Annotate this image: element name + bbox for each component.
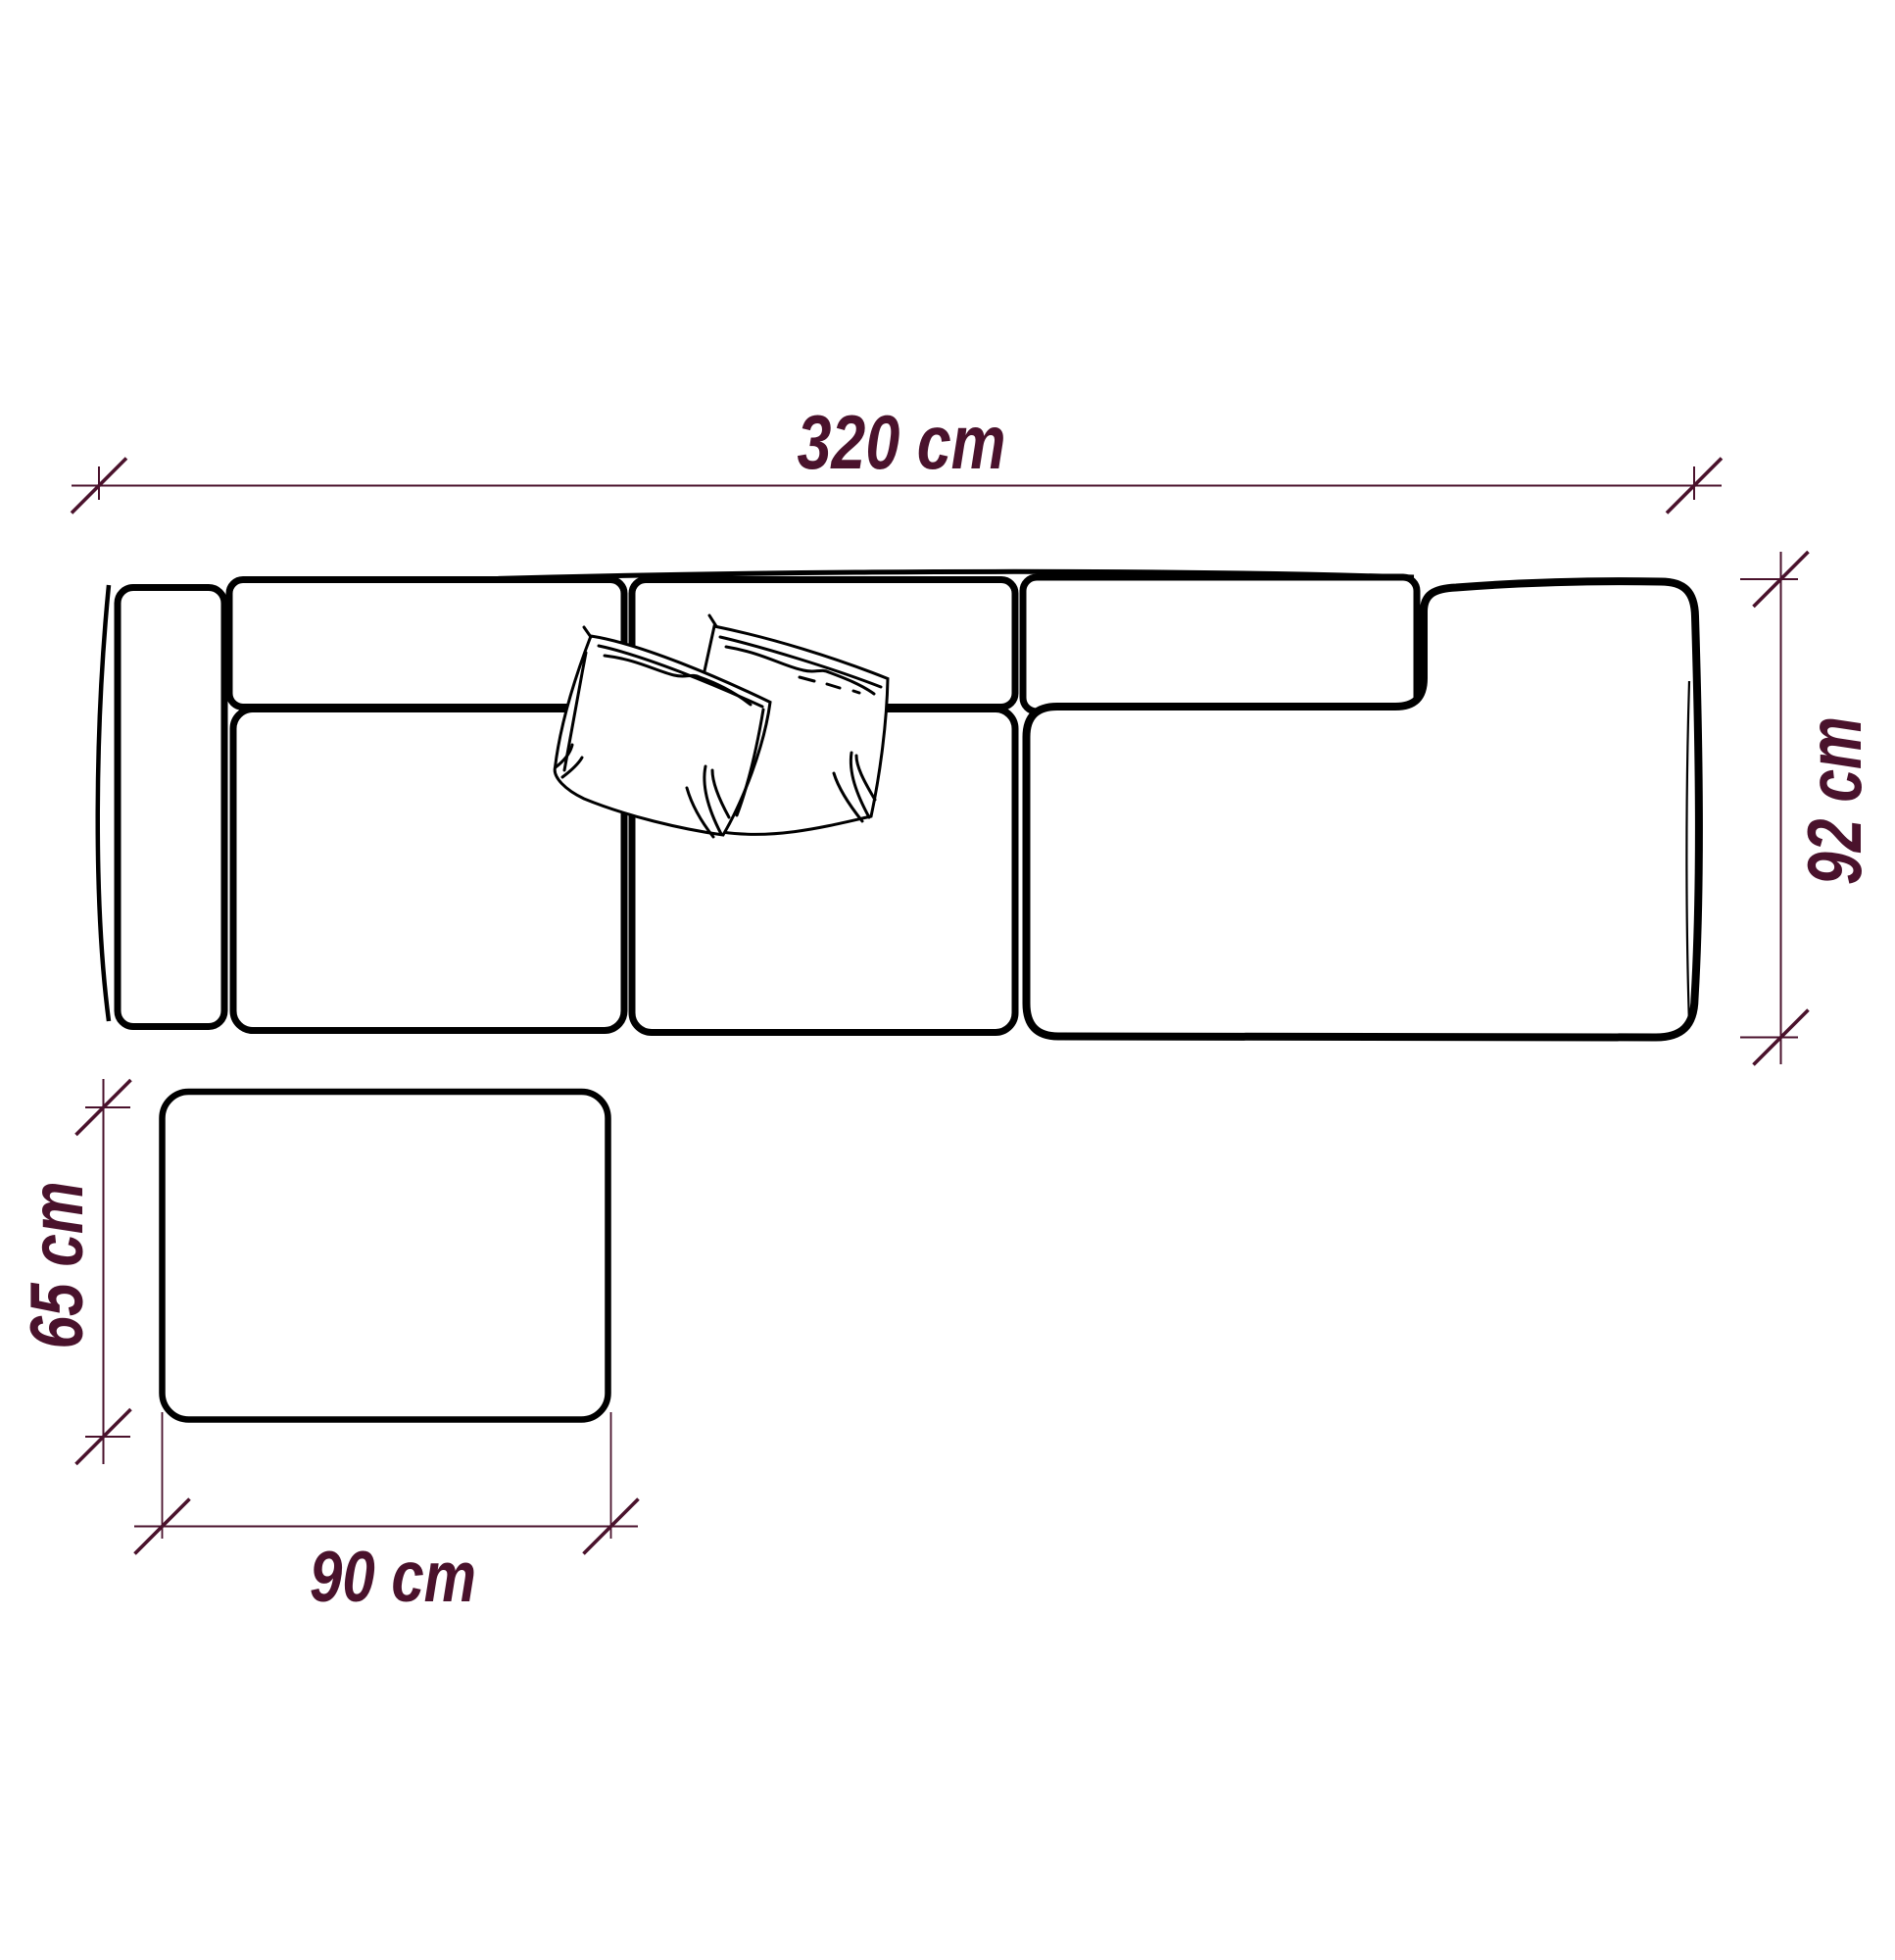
svg-text:65 cm: 65 cm — [16, 1182, 99, 1349]
svg-text:90 cm: 90 cm — [310, 1538, 476, 1617]
svg-text:92 cm: 92 cm — [1791, 716, 1877, 885]
svg-text:320 cm: 320 cm — [798, 399, 1006, 485]
